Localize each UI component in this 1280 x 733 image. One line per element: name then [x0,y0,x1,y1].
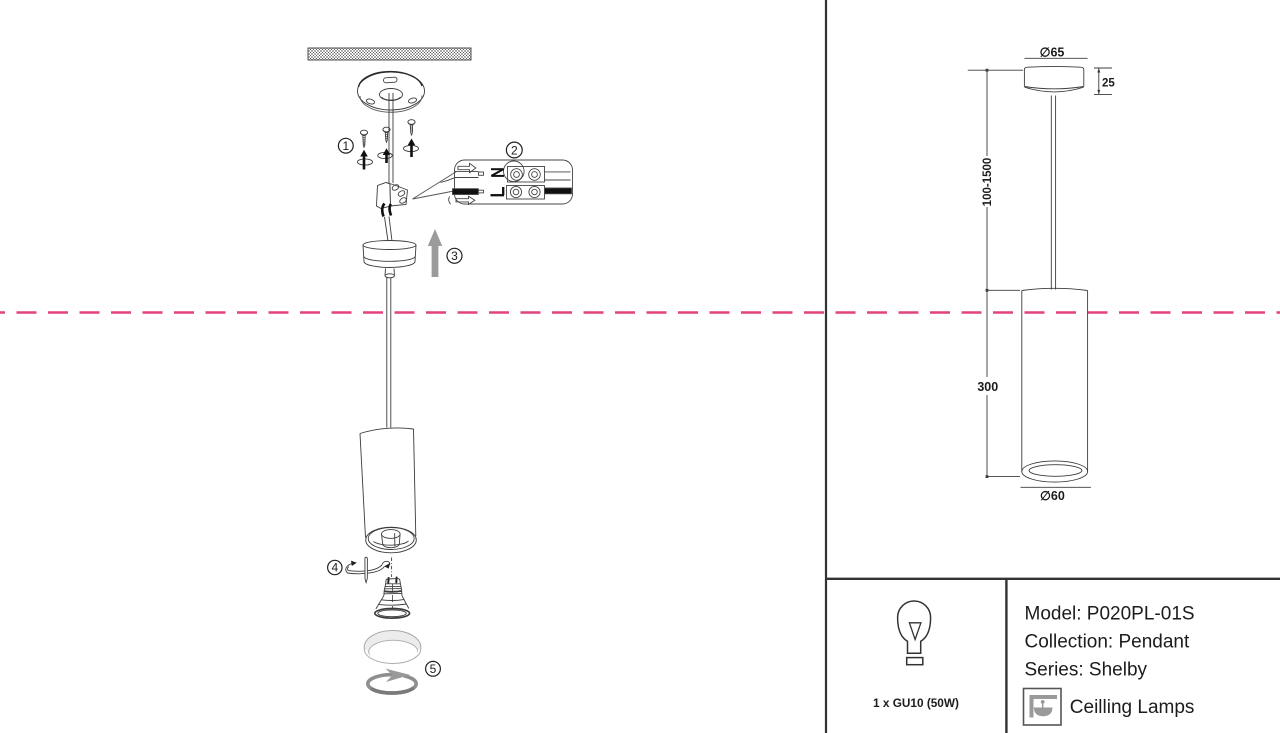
svg-text:1: 1 [342,139,349,153]
svg-text:300: 300 [977,380,998,394]
svg-text:Model: P020PL-01S: Model: P020PL-01S [1025,604,1195,625]
svg-text:Collection: Pendant: Collection: Pendant [1025,632,1190,653]
svg-text:Ceilling Lamps: Ceilling Lamps [1070,697,1195,718]
svg-text:3: 3 [451,249,458,263]
svg-text:Series: Shelby: Series: Shelby [1025,660,1148,681]
svg-text:4: 4 [331,561,338,575]
svg-text:100-1500: 100-1500 [982,158,994,207]
svg-text:25: 25 [1102,78,1115,90]
svg-text:2: 2 [511,143,518,157]
svg-text:∅65: ∅65 [1040,46,1065,60]
svg-text:5: 5 [430,662,437,676]
svg-text:∅60: ∅60 [1040,489,1065,503]
svg-text:1 x GU10 (50W): 1 x GU10 (50W) [873,696,959,710]
